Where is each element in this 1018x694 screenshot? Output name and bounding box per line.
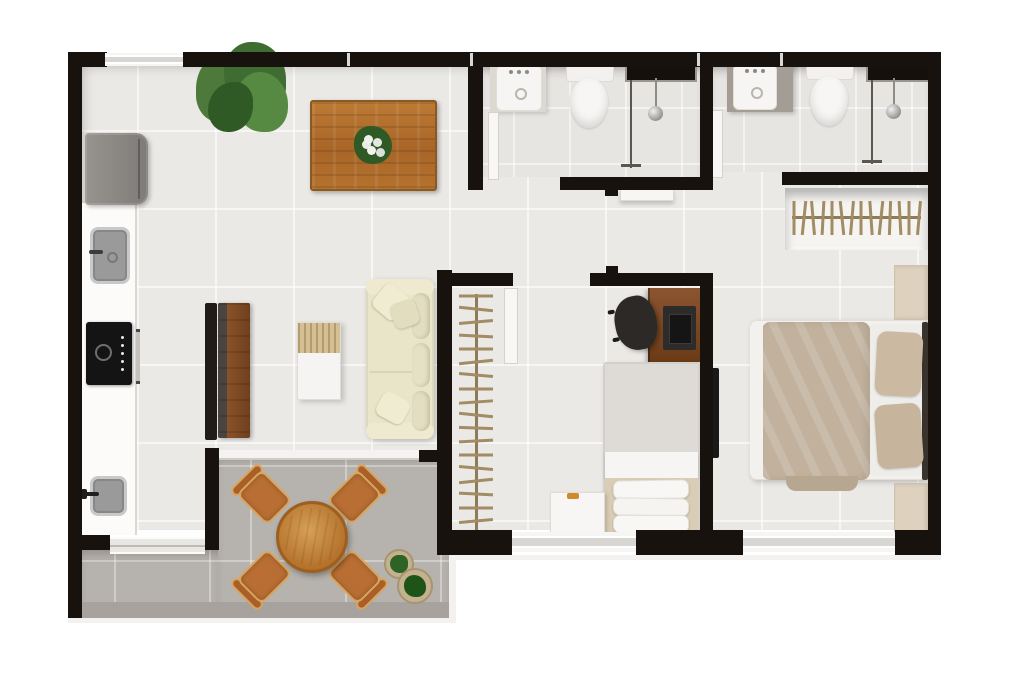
clothes-hanger-icon — [820, 201, 825, 235]
flower-centerpiece — [354, 126, 392, 164]
clothes-hanger-icon — [877, 201, 884, 235]
oven-handle — [136, 329, 140, 384]
burner-ring-icon — [95, 344, 112, 361]
sofa-bolster — [412, 343, 430, 387]
master-nightstand-top — [894, 265, 930, 320]
clothes-hanger-icon — [888, 201, 892, 235]
clothes-hanger-icon — [849, 201, 855, 235]
clothes-hanger-icon — [459, 359, 493, 366]
balcony-floor-left — [82, 550, 218, 602]
faucet-dots-icon — [745, 69, 749, 73]
fridge-door-line — [138, 139, 140, 199]
clothes-hanger-icon — [459, 518, 493, 524]
bed-pillow — [613, 497, 689, 516]
sheet-edge — [750, 322, 763, 478]
wall-bedroom2-left — [437, 270, 452, 555]
knob-dots-icon — [121, 336, 124, 339]
bath2-shower-head-icon — [886, 104, 901, 119]
clothes-hanger-icon — [459, 439, 493, 444]
wall-joint — [347, 53, 350, 66]
bath1-shower-column-base — [621, 164, 641, 167]
clothes-hanger-icon — [810, 201, 816, 235]
monitor-screen — [669, 314, 692, 344]
kitchen-sink — [90, 227, 130, 284]
wall-joint — [470, 53, 473, 66]
faucet-dots-icon — [509, 70, 513, 74]
bath2-door-leaf — [712, 110, 723, 178]
bed-blanket — [605, 364, 698, 454]
clothes-hanger-icon — [831, 201, 834, 235]
wall-top-main — [183, 52, 941, 67]
master-window — [743, 532, 895, 552]
sofa-bolster — [412, 391, 430, 431]
bath2-shower-column — [871, 80, 873, 164]
door-jamb — [697, 177, 713, 190]
clothes-hanger-icon — [459, 306, 493, 313]
wall-right — [928, 52, 941, 555]
sink-faucet-icon — [89, 250, 103, 254]
sink-drain-icon — [107, 252, 118, 263]
bed-folded-sheet — [605, 452, 698, 478]
balcony-curb — [82, 602, 449, 618]
bath2-shower-hose — [893, 78, 895, 106]
bath2-shower-column-base — [862, 160, 882, 163]
wall-joint — [697, 53, 700, 66]
clothes-hanger-icon — [868, 201, 873, 235]
refrigerator — [85, 133, 148, 205]
potted-plant-large — [397, 568, 433, 604]
cooktop — [86, 322, 132, 385]
balcony-round-table — [276, 501, 348, 573]
wall-bottom-mid — [636, 530, 743, 555]
throw-pillow — [374, 389, 413, 426]
clothes-hanger-icon — [459, 372, 493, 378]
clothes-hanger-icon — [459, 347, 493, 350]
door-jamb — [606, 266, 618, 275]
plant-foliage-icon — [404, 575, 426, 597]
clothes-hanger-icon — [459, 319, 493, 325]
living-balcony-sliding-door — [219, 450, 437, 460]
wall-bottom-bedroom2 — [437, 530, 512, 555]
decor-item-icon — [567, 493, 579, 499]
master-pillow — [874, 331, 923, 397]
bedroom2-closet-hangers — [458, 296, 494, 534]
kitchen-window — [105, 53, 183, 66]
chair-armrest-icon — [607, 310, 615, 315]
building-bottom-sill — [455, 555, 941, 560]
clothes-hanger-icon — [459, 295, 493, 298]
double-bed — [750, 320, 928, 480]
table-grain — [283, 508, 341, 566]
clothes-hanger-icon — [897, 201, 902, 235]
hallway-bench — [620, 189, 674, 201]
coffee-table — [297, 322, 341, 400]
clothes-hanger-icon — [793, 201, 796, 235]
sofa-seam — [370, 371, 412, 373]
desk-monitor — [663, 306, 696, 350]
coffee-table-wood-top — [298, 323, 340, 353]
clothes-hanger-icon — [860, 201, 863, 235]
clothes-hanger-icon — [459, 506, 493, 509]
clothes-hanger-icon — [916, 201, 922, 235]
white-flowers-icon — [364, 135, 373, 144]
wall-tv-stub — [205, 448, 219, 550]
wall-bath1-bottom — [560, 177, 713, 190]
clothes-hanger-icon — [459, 426, 493, 430]
wall-bath-divider — [700, 52, 713, 183]
bath1-door-leaf — [488, 112, 499, 180]
rack-grain — [218, 303, 250, 438]
wall-bath1-left — [468, 52, 483, 190]
closet-hangers — [794, 198, 919, 238]
bath1-shower-column — [630, 80, 632, 168]
clothes-hanger-icon — [459, 492, 493, 497]
clothes-hanger-icon — [839, 201, 846, 235]
bath1-washbasin — [496, 65, 542, 111]
bedroom2-window — [512, 532, 636, 552]
blanket-drape — [786, 476, 858, 491]
bath2-washbasin — [733, 64, 777, 110]
clothes-hanger-icon — [800, 201, 807, 235]
tv-rack — [218, 303, 250, 438]
kitchen-balcony-glass-door — [110, 537, 205, 554]
door-jamb — [605, 187, 618, 196]
master-wardrobe-closet — [785, 188, 928, 250]
wall-joint — [780, 53, 783, 66]
single-bed — [603, 362, 700, 544]
wall-bedroom2-top-left — [437, 273, 513, 286]
balcony-bottom-trim — [68, 618, 455, 623]
basin-drain-icon — [751, 87, 763, 99]
wall-bottom-right — [895, 530, 941, 555]
basin-drain-icon — [515, 88, 527, 100]
clothes-hanger-icon — [459, 333, 493, 338]
wall-master-divider — [700, 273, 713, 555]
bath1-shower-hose — [655, 78, 657, 108]
wall-bath2-bottom — [782, 172, 941, 185]
clothes-hanger-icon — [459, 465, 493, 471]
bath1-shower-head-icon — [648, 106, 663, 121]
apartment-floor-plan — [0, 0, 1018, 694]
wall-kitchen-balcony — [80, 535, 110, 550]
sofa — [366, 279, 434, 439]
laundry-tub — [90, 476, 127, 516]
clothes-hanger-icon — [459, 412, 493, 419]
clothes-hanger-icon — [459, 387, 493, 390]
dining-table — [310, 100, 437, 191]
clothes-hanger-icon — [459, 453, 493, 456]
clothes-hanger-icon — [459, 478, 493, 485]
bedroom2-door-leaf — [504, 288, 518, 364]
beige-blanket — [762, 322, 870, 480]
wall-balcony-end — [419, 450, 437, 462]
master-pillow — [874, 402, 924, 469]
clothes-hanger-icon — [908, 201, 911, 235]
wall-left — [68, 52, 82, 618]
clothes-hanger-icon — [459, 399, 493, 404]
tv-panel — [205, 303, 217, 440]
